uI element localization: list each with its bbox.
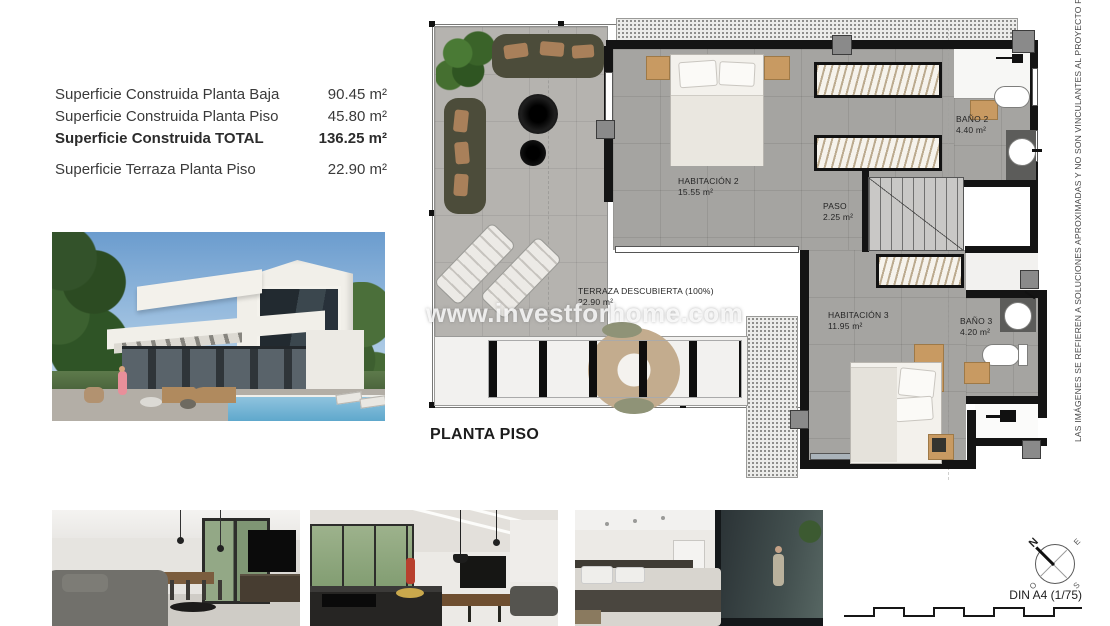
interior-photo-kitchen [310,510,558,626]
wall-segment [800,250,809,462]
tv-screen [248,530,296,572]
round-side-table [520,140,546,166]
wardrobe [876,254,964,288]
row-label: Superficie Construida Planta Baja [55,84,295,106]
wall-connector [832,35,852,55]
cushion [503,42,529,59]
outdoor-sofa [492,34,604,78]
staircase [868,177,964,251]
person-outside [773,554,784,586]
wall-segment [1030,180,1038,252]
scale-label: DIN A4 (1/75) [880,588,1082,602]
cushion [454,141,470,164]
shower-arm-icon [996,57,1012,59]
row-label: Superficie Construida Planta Piso [55,106,295,128]
window-mullions [310,524,410,594]
room-label-bano2: BAÑO 2 4.40 m² [956,114,988,135]
sofa [510,586,558,616]
room-label-bano3: BAÑO 3 4.20 m² [960,316,992,337]
watermark: www.investforhome.com [426,298,743,329]
sink [1004,302,1032,330]
brochure-page: Superficie Construida Planta Baja 90.45 … [0,0,1110,626]
room-name: HABITACIÓN 3 [828,310,889,321]
room-label-habitacion3: HABITACIÓN 3 11.95 m² [828,310,889,331]
cushion [453,109,469,132]
wall-connector [790,410,809,429]
room-name: BAÑO 3 [960,316,992,327]
void-chair-below [614,398,654,414]
pendant-light [496,510,497,540]
spotlight [605,522,609,526]
villa-exterior-render [52,232,385,421]
table-row-total: Superficie Construida TOTAL 136.25 m² [55,128,387,150]
wardrobe [814,135,942,171]
pendant-light [220,510,221,546]
row-value: 136.25 m² [295,128,387,150]
cushion [572,44,595,59]
pendant-bulb [493,539,500,546]
pillow [678,60,718,89]
cooktop [322,594,376,607]
row-value: 45.80 m² [295,106,387,128]
pergola-slats [488,340,742,398]
pendant-light [180,510,181,538]
pillow [894,396,934,423]
sideboard [240,574,300,602]
side-table [140,397,162,407]
table-row: Superficie Construida Planta Piso 45.80 … [55,106,387,128]
nightstand [764,56,790,80]
surface-table: Superficie Construida Planta Baja 90.45 … [55,84,387,181]
room-area: 15.55 m² [678,187,739,198]
nightstand [575,610,601,624]
woman-head [119,366,125,372]
room-area: 11.95 m² [828,321,889,332]
pendant-light [460,510,461,555]
room-name: BAÑO 2 [956,114,988,125]
spotlight [633,519,637,523]
bath-mat [964,362,990,384]
slider-rail [715,618,823,626]
bed-throw [575,590,721,612]
decor-item [932,438,946,452]
outdoor-plant [797,518,823,552]
scale-bar [843,604,1083,618]
room-name: PASO [823,201,853,212]
side-wall [510,520,558,582]
row-value: 22.90 m² [295,159,387,181]
pendant-bulb [217,545,224,552]
room-area: 2.25 m² [823,212,853,223]
duvet [851,367,897,462]
interior-photo-living [52,510,300,626]
fruit-bowl [396,588,424,598]
table-legs [438,606,508,622]
row-label: Superficie Construida TOTAL [55,128,295,150]
plan-title: PLANTA PISO [430,426,539,444]
plant [436,30,498,96]
room-name: HABITACIÓN 2 [678,176,739,187]
bed [670,54,764,166]
wardrobe [814,62,942,98]
person-head [775,546,782,553]
sofa-cushion [62,574,108,592]
outdoor-sofa [444,98,486,214]
cushion [453,174,469,197]
table-row: Superficie Construida Planta Baja 90.45 … [55,84,387,106]
wall-connector [1020,270,1039,289]
wall-connector [1012,30,1035,53]
wall-segment [965,246,1038,253]
room-label-paso: PASO 2.25 m² [823,201,853,222]
sliding-glass-door [615,246,799,253]
table-row: Superficie Terraza Planta Piso 22.90 m² [55,159,387,181]
rattan-chair [84,387,104,403]
red-decor [406,558,415,584]
pendant-bulb [177,537,184,544]
pendant-shade [453,554,468,563]
pillow [581,566,613,584]
wall-connector [1022,440,1041,459]
room-area: 4.20 m² [960,327,992,338]
door-arrow [1032,149,1042,152]
wall-segment [966,396,1047,404]
wall-segment [954,180,1038,187]
gravel-strip-side [746,316,798,478]
sink [1008,138,1036,166]
pillow [898,367,937,399]
interior-photo-bedroom [575,510,823,626]
room-label-habitacion2: HABITACIÓN 2 15.55 m² [678,176,739,197]
pillow [615,567,645,583]
pouf [180,399,196,409]
cushion [539,41,564,57]
duvet [671,95,763,166]
room-name: TERRAZA DESCUBIERTA (100%) [578,286,714,297]
round-coffee-table [518,94,558,134]
appliance-mark [1000,410,1016,422]
nightstand [646,56,670,80]
shower-head-icon [1012,54,1023,63]
spotlight [661,516,665,520]
pillow [718,61,755,87]
window [1032,68,1038,106]
appliance-mark [986,415,1000,418]
row-value: 90.45 m² [295,84,387,106]
coffee-table [170,602,216,612]
compass-east-label: E [1072,537,1082,547]
dining-table [430,594,514,606]
disclaimer-text: LAS IMÁGENES SE REFIEREN A SOLUCIONES AP… [1073,16,1083,442]
wall-segment [606,40,1038,49]
row-label: Superficie Terraza Planta Piso [55,159,295,181]
room-area: 4.40 m² [956,125,988,136]
outdoor-chairs [162,387,236,403]
woman-figure [118,371,127,395]
toilet [994,86,1030,108]
wall-connector [596,120,615,139]
toilet-tank [1018,344,1028,366]
